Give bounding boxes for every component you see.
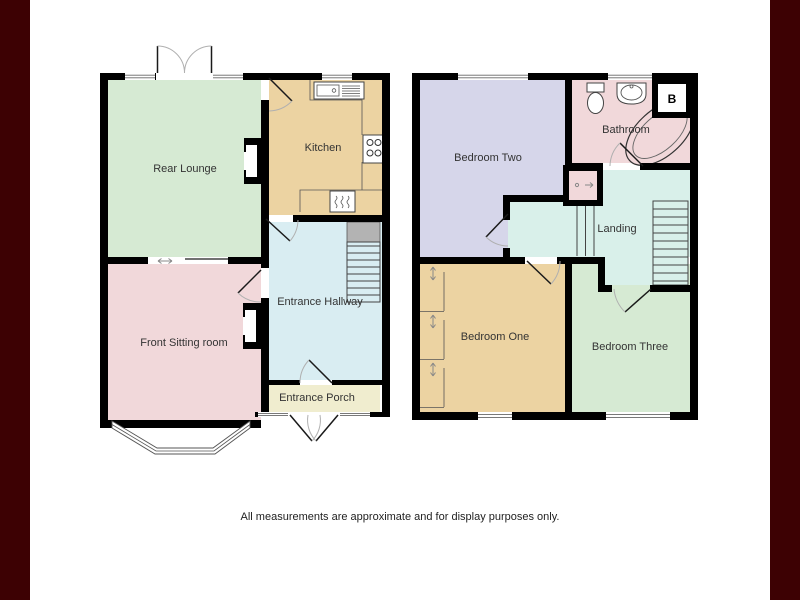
ground-floor: Rear Lounge Kitchen Front Sitting room E… — [100, 46, 390, 454]
boiler-cupboard-icon: B — [652, 80, 690, 118]
hob-icon — [363, 135, 384, 163]
label-bathroom: Bathroom — [602, 124, 650, 136]
label-landing: Landing — [597, 223, 636, 235]
window-bedroom-one — [478, 412, 512, 420]
entrance-doors-icon — [288, 412, 340, 441]
disclaimer-caption: All measurements are approximate and for… — [0, 511, 800, 523]
fireplace-sitting-icon — [243, 303, 261, 349]
heater-icon — [330, 191, 355, 212]
window-bedroom-three — [606, 412, 670, 420]
first-floor: B — [412, 73, 706, 420]
toilet-icon — [587, 83, 604, 114]
window-bedroom-two — [458, 73, 528, 80]
label-entrance-hallway: Entrance Hallway — [277, 296, 363, 308]
label-bedroom-three: Bedroom Three — [592, 341, 668, 353]
french-doors-icon — [156, 46, 213, 80]
label-bedroom-one: Bedroom One — [461, 331, 529, 343]
window-bathroom — [608, 73, 652, 80]
label-boiler: B — [668, 92, 677, 106]
room-landing-upper — [600, 170, 690, 200]
window-porch-left — [258, 412, 288, 417]
label-entrance-porch: Entrance Porch — [279, 392, 355, 404]
airing-cupboard-icon — [563, 165, 603, 206]
label-rear-lounge: Rear Lounge — [153, 163, 217, 175]
fireplace-lounge-icon — [244, 138, 262, 184]
window-porch-right — [340, 412, 370, 417]
window-lounge-right — [213, 73, 243, 80]
label-front-sitting-room: Front Sitting room — [140, 337, 227, 349]
window-lounge-left — [125, 73, 155, 80]
basin-icon — [617, 83, 646, 104]
label-bedroom-two: Bedroom Two — [454, 152, 522, 164]
sliding-arrow-icon — [158, 259, 172, 264]
window-kitchen — [322, 73, 352, 80]
floorplan-canvas: Rear Lounge Kitchen Front Sitting room E… — [0, 0, 800, 600]
label-kitchen: Kitchen — [305, 142, 342, 154]
